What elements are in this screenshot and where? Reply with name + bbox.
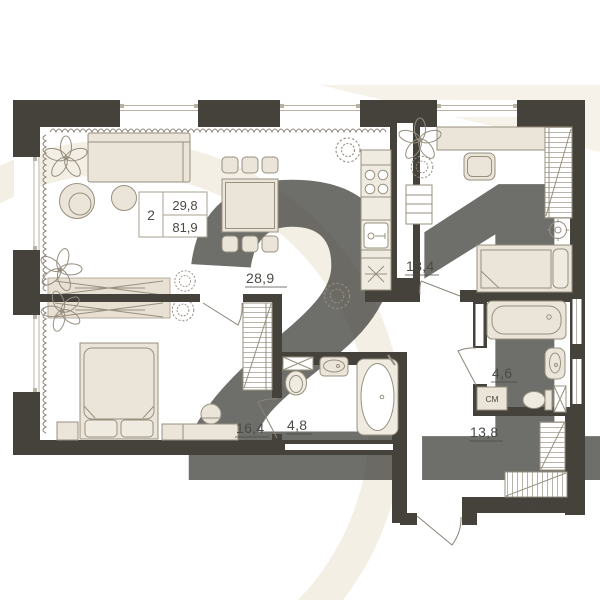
svg-text:13,4: 13,4 (406, 258, 434, 274)
label-bedroom-main-area: 16,4 (235, 420, 269, 437)
desk (162, 424, 238, 440)
desk-chair (201, 404, 221, 424)
desk (437, 127, 550, 150)
window (573, 359, 582, 404)
window (280, 100, 360, 117)
bathtub (357, 355, 398, 435)
svg-text:16,4: 16,4 (236, 420, 264, 436)
dining-table (222, 179, 278, 232)
label-bedroom-top-area: 13,4 (405, 258, 439, 275)
crib (406, 185, 432, 224)
armchair (60, 184, 95, 219)
wardrobe (505, 472, 567, 497)
svg-text:4,8: 4,8 (287, 417, 307, 433)
toilet (286, 371, 307, 395)
panel (554, 386, 566, 412)
window (120, 100, 198, 117)
nightstand (57, 422, 78, 440)
apartment-info-box: 2 29,8 81,9 (139, 192, 207, 237)
bed-single (477, 245, 572, 292)
hall-wardrobe (243, 303, 272, 390)
window (437, 100, 517, 117)
label-hallway-area: 13,8 (469, 424, 503, 441)
window (573, 299, 582, 344)
washing-machine-label: СМ (485, 394, 498, 404)
window (14, 157, 40, 250)
sofa (88, 133, 190, 182)
shelf (283, 357, 313, 370)
sink (320, 357, 348, 376)
window (14, 315, 40, 392)
curtain (43, 307, 46, 433)
kitchen-appliance-symbol (361, 258, 391, 290)
wardrobe (540, 422, 565, 470)
floor-plan: 21 (0, 0, 600, 600)
coffee-table (112, 186, 137, 211)
rooms-count: 2 (147, 207, 155, 223)
svg-text:13,8: 13,8 (470, 424, 498, 440)
bathtub (487, 301, 566, 339)
washing-machine: СМ (477, 387, 507, 410)
desk-chair (464, 153, 495, 180)
total-area-value: 81,9 (172, 220, 197, 235)
sink (545, 348, 565, 379)
svg-text:4,6: 4,6 (492, 365, 512, 381)
kitchen-sink (364, 223, 388, 248)
toilet (523, 390, 552, 410)
watermark-corner-text: СМ (512, 498, 535, 515)
living-area-value: 29,8 (172, 198, 197, 213)
wardrobe (545, 127, 572, 218)
bed-double (80, 343, 158, 439)
svg-text:28,9: 28,9 (246, 270, 274, 286)
